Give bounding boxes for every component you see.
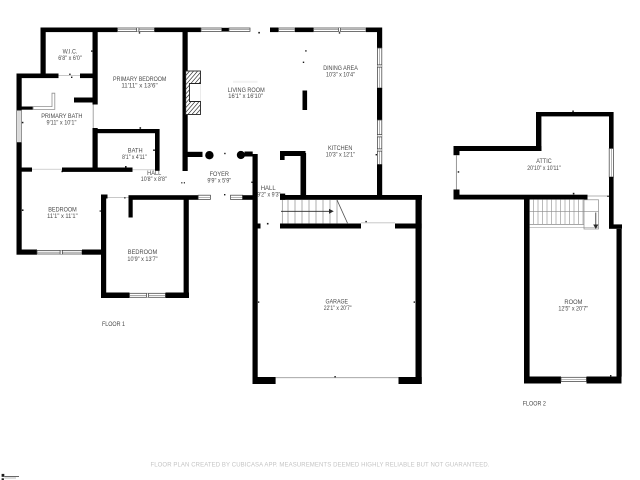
- svg-text:20'10" x 10'11": 20'10" x 10'11": [527, 165, 560, 172]
- svg-text:12'5" x 20'7": 12'5" x 20'7": [558, 306, 588, 313]
- svg-text:11'1" x 11'1": 11'1" x 11'1": [47, 213, 78, 220]
- svg-text:9'2" x 9'3": 9'2" x 9'3": [257, 191, 280, 198]
- svg-text:16'1" x 16'10": 16'1" x 16'10": [228, 93, 263, 100]
- svg-text:9'11" x 10'1": 9'11" x 10'1": [47, 120, 77, 127]
- svg-text:FLOOR PLAN CREATED BY CUBICASA: FLOOR PLAN CREATED BY CUBICASA APP. MEAS…: [150, 463, 489, 469]
- svg-text:FLOOR 2: FLOOR 2: [523, 401, 546, 408]
- svg-text:22'1" x 20'7": 22'1" x 20'7": [324, 305, 352, 312]
- svg-text:11'11" x 13'6": 11'11" x 13'6": [121, 83, 157, 90]
- svg-text:FLOOR 1: FLOOR 1: [102, 321, 125, 328]
- svg-text:10'3" x 10'4": 10'3" x 10'4": [326, 71, 355, 78]
- svg-text:10'3" x 12'1": 10'3" x 12'1": [326, 152, 355, 159]
- svg-text:8'1" x 4'11": 8'1" x 4'11": [122, 154, 147, 161]
- svg-text:9'9" x 5'9": 9'9" x 5'9": [207, 177, 231, 184]
- svg-text:10'8" x 8'8": 10'8" x 8'8": [141, 176, 167, 183]
- svg-text:10'9" x 13'7": 10'9" x 13'7": [127, 256, 157, 263]
- svg-text:6'8" x 6'0": 6'8" x 6'0": [58, 55, 82, 62]
